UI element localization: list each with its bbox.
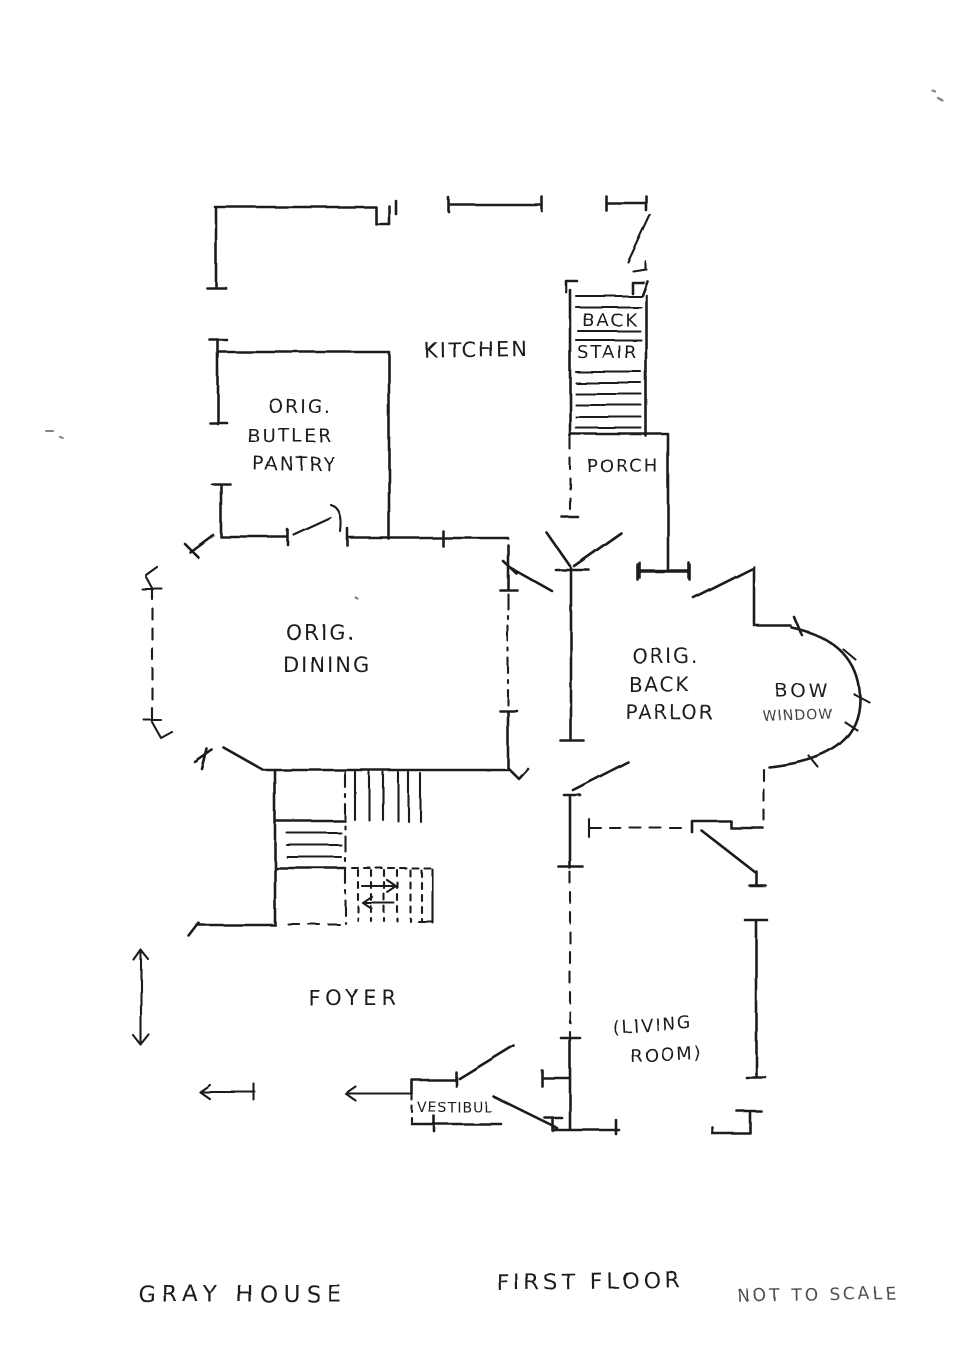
center-passage	[503, 533, 690, 1129]
dining-left-wall-ends	[142, 567, 172, 738]
vestibule-label: VESTIBUL	[417, 1100, 493, 1116]
living-room-label-line1: (LIVING	[611, 1013, 693, 1038]
floor-title: FIRST FLOOR	[497, 1268, 684, 1296]
scanned-floor-plan-page: BACK STAIR PORCH KITCHEN ORIG. BUTLER PA…	[0, 0, 960, 1350]
living-room: (LIVING ROOM)	[611, 920, 767, 1133]
bow-window-label-line1: BOW	[775, 680, 830, 702]
porch: PORCH	[562, 434, 689, 578]
top-door-swing	[628, 215, 650, 271]
butler-pantry-walls	[185, 340, 508, 557]
left-arrow	[200, 1084, 255, 1100]
stair-treads	[287, 833, 341, 857]
entry-steps-dashed-treads	[352, 868, 434, 921]
vestibule-walls	[412, 1045, 619, 1134]
exterior-top-walls	[207, 196, 650, 288]
porch-label: PORCH	[587, 456, 660, 477]
back-stair-label-line2: STAIR	[577, 342, 638, 363]
butler-pantry-label-line2: BUTLER	[247, 425, 333, 447]
below-bow-step-wall	[692, 821, 766, 886]
up-arrow	[362, 880, 396, 892]
top-left-wall	[207, 201, 396, 288]
top-window-segments	[449, 196, 646, 212]
butler-pantry: ORIG. BUTLER PANTRY	[185, 340, 508, 557]
scale-note: NOT TO SCALE	[737, 1283, 899, 1306]
vestibule: VESTIBUL	[346, 1045, 619, 1134]
foyer-wall	[189, 923, 275, 936]
bow-approach-walls	[694, 567, 801, 634]
passage-walls-and-swings	[503, 533, 690, 1129]
butler-pantry-label-line1: ORIG.	[268, 395, 333, 418]
back-stair: BACK STAIR	[566, 281, 647, 436]
foyer-label: FOYER	[308, 986, 401, 1010]
back-parlor: ORIG. BACK PARLOR	[625, 644, 716, 725]
house-title: GRAY HOUSE	[138, 1282, 348, 1308]
living-room-label-line2: ROOM)	[630, 1043, 704, 1067]
bow-window: BOW WINDOW	[589, 567, 869, 886]
double-headed-arrow	[133, 950, 149, 1045]
butler-pantry-label-line3: PANTRY	[252, 452, 337, 475]
dining-label-line2: DINING	[283, 653, 371, 677]
bow-window-label-line2: WINDOW	[763, 707, 834, 725]
entry-steps	[352, 868, 434, 922]
hand-drawn-plan: BACK STAIR PORCH KITCHEN ORIG. BUTLER PA…	[46, 91, 943, 1308]
back-parlor-label-line3: PARLOR	[625, 699, 716, 725]
back-parlor-label-line2: BACK	[628, 672, 690, 696]
dining-right-wall	[500, 545, 517, 768]
living-room-corner	[712, 1111, 761, 1133]
butler-pantry-door-swing	[294, 505, 342, 535]
kitchen-label: KITCHEN	[424, 337, 529, 363]
vestibule-arrow	[346, 1087, 411, 1101]
dining-label-line1: ORIG.	[286, 621, 356, 645]
dining-room: ORIG. DINING	[142, 545, 528, 779]
stair-walls	[275, 770, 345, 925]
dining-bottom-wall	[195, 748, 528, 779]
down-arrow	[363, 897, 394, 909]
main-staircase	[275, 770, 420, 925]
living-room-right-wall	[745, 920, 767, 1077]
back-parlor-label-line1: ORIG.	[632, 644, 699, 668]
sheet-titles: GRAY HOUSE FIRST FLOOR NOT TO SCALE	[138, 1268, 899, 1308]
stair-balusters	[355, 772, 420, 821]
foyer-area: FOYER	[133, 909, 432, 1100]
floor-plan-drawing: BACK STAIR PORCH KITCHEN ORIG. BUTLER PA…	[0, 0, 960, 1350]
back-stair-label-line1: BACK	[582, 310, 639, 331]
